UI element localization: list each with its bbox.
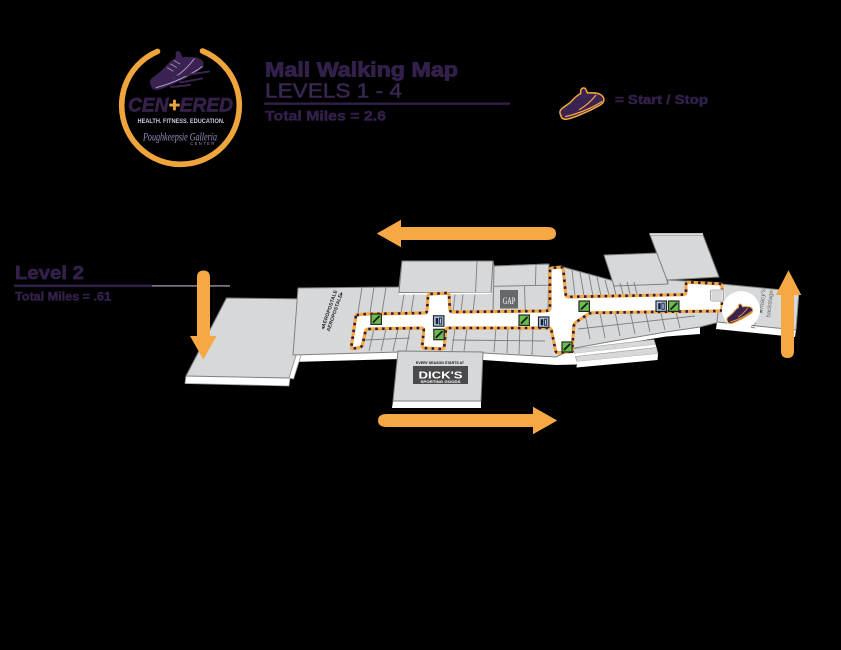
- svg-text:HEALTH. FITNESS. EDUCATION.: HEALTH. FITNESS. EDUCATION.: [138, 118, 225, 125]
- svg-text:CENTER: CENTER: [190, 141, 216, 146]
- svg-text:Mall Walking Map: Mall Walking Map: [265, 59, 458, 82]
- svg-text:SPORTING GOODS: SPORTING GOODS: [421, 380, 462, 384]
- svg-text:LEVELS 1 - 4: LEVELS 1 - 4: [265, 81, 402, 103]
- svg-text:GAP: GAP: [503, 297, 516, 307]
- svg-text:Total Miles = .61: Total Miles = .61: [15, 290, 111, 304]
- svg-text:Level 2: Level 2: [15, 262, 84, 283]
- svg-text:EVERY SEASON STARTS AT: EVERY SEASON STARTS AT: [416, 361, 465, 365]
- svg-text:Total Miles = 2.6: Total Miles = 2.6: [265, 109, 387, 124]
- svg-text:= Start / Stop: = Start / Stop: [615, 92, 708, 107]
- svg-text:CEN+ERED: CEN+ERED: [128, 96, 233, 117]
